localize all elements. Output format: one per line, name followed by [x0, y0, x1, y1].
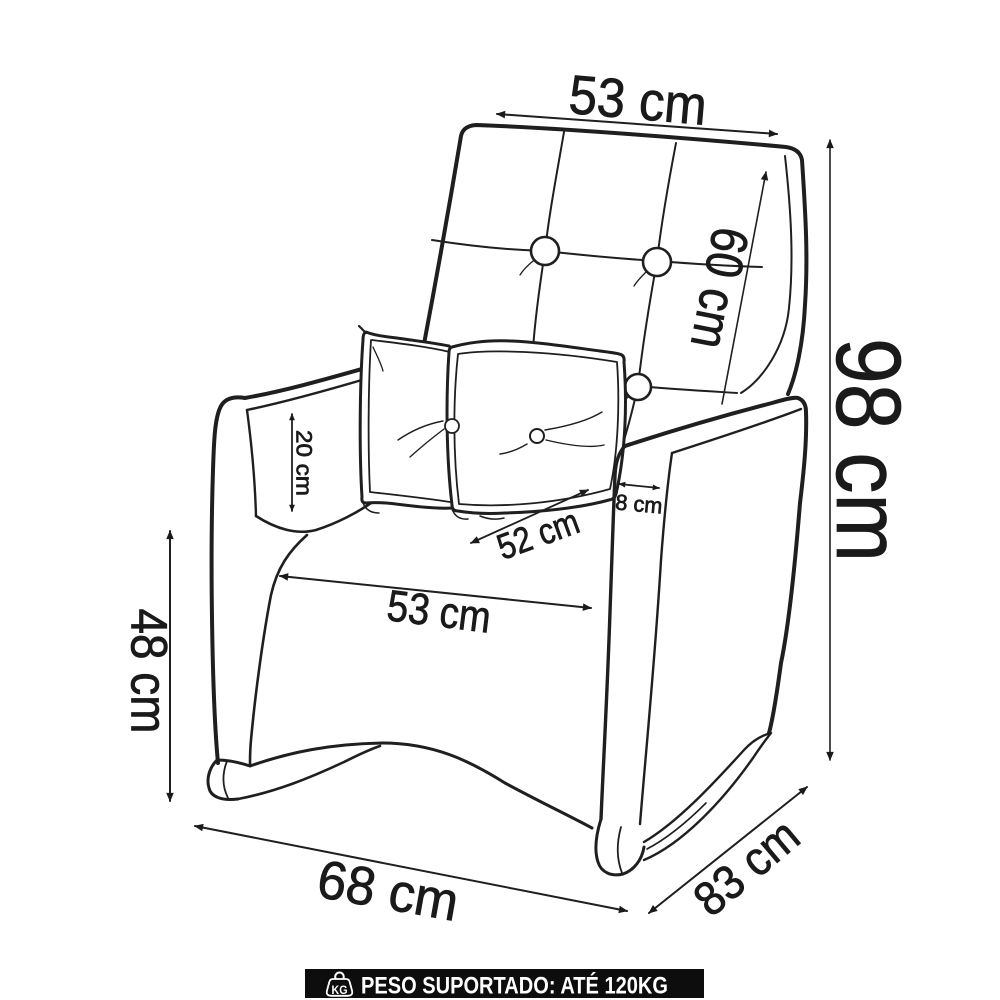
svg-text:60 cm: 60 cm: [679, 223, 759, 354]
svg-text:83 cm: 83 cm: [684, 809, 810, 927]
svg-text:53 cm: 53 cm: [384, 581, 493, 642]
svg-text:98 cm: 98 cm: [817, 338, 919, 562]
svg-text:KG: KG: [332, 985, 348, 997]
svg-text:48 cm: 48 cm: [121, 609, 178, 734]
svg-text:53 cm: 53 cm: [567, 63, 710, 137]
svg-text:20 cm: 20 cm: [292, 430, 317, 496]
svg-text:68 cm: 68 cm: [313, 849, 463, 933]
svg-text:PESO SUPORTADO: ATÉ 120KG: PESO SUPORTADO: ATÉ 120KG: [361, 972, 668, 1000]
svg-text:8 cm: 8 cm: [615, 489, 664, 518]
